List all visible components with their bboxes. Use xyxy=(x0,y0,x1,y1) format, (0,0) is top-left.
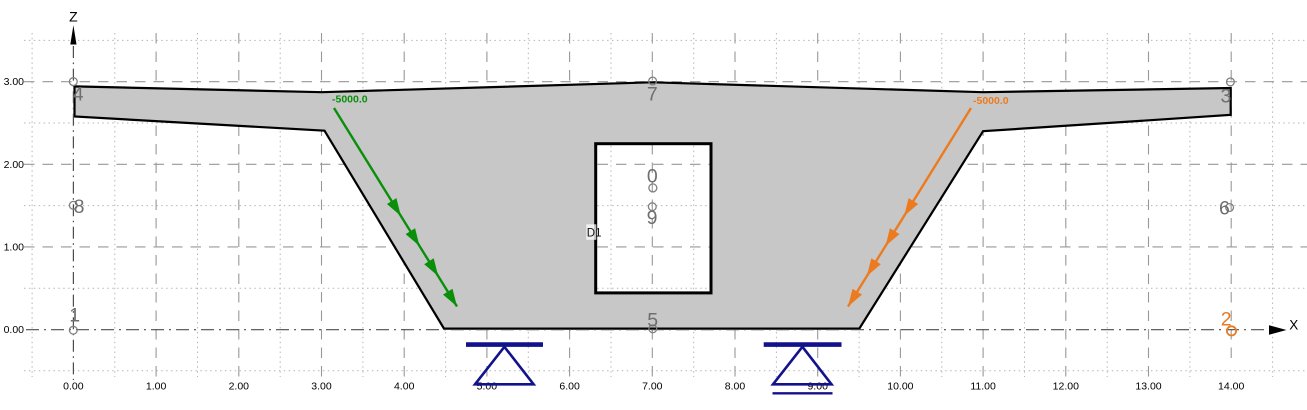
svg-text:D1: D1 xyxy=(587,228,602,240)
svg-text:3.00: 3.00 xyxy=(4,76,25,88)
svg-text:1: 1 xyxy=(69,304,80,326)
svg-text:10.00: 10.00 xyxy=(887,380,913,392)
svg-text:9.00: 9.00 xyxy=(807,380,828,392)
svg-text:2.00: 2.00 xyxy=(4,159,25,171)
svg-text:6: 6 xyxy=(1219,198,1230,220)
svg-text:1.00: 1.00 xyxy=(146,380,167,392)
svg-text:12.00: 12.00 xyxy=(1053,380,1079,392)
svg-text:4: 4 xyxy=(73,84,84,106)
svg-text:8: 8 xyxy=(74,196,85,218)
svg-text:11.00: 11.00 xyxy=(970,380,996,392)
svg-text:3: 3 xyxy=(1220,85,1231,107)
svg-text:7: 7 xyxy=(647,83,658,105)
svg-text:0: 0 xyxy=(647,166,658,188)
svg-text:0.00: 0.00 xyxy=(4,324,25,336)
svg-text:0.00: 0.00 xyxy=(63,380,84,392)
svg-text:6.00: 6.00 xyxy=(559,380,580,392)
svg-text:-5000.0: -5000.0 xyxy=(332,93,368,105)
svg-text:7.00: 7.00 xyxy=(642,380,663,392)
svg-text:X: X xyxy=(1289,318,1298,333)
svg-text:2.00: 2.00 xyxy=(229,380,250,392)
svg-text:13.00: 13.00 xyxy=(1135,380,1161,392)
svg-text:14.00: 14.00 xyxy=(1218,380,1244,392)
svg-text:5.00: 5.00 xyxy=(477,380,498,392)
svg-text:Z: Z xyxy=(69,9,78,25)
svg-text:5: 5 xyxy=(647,309,658,331)
svg-text:3.00: 3.00 xyxy=(311,380,332,392)
svg-text:9: 9 xyxy=(647,207,658,229)
svg-text:4.00: 4.00 xyxy=(394,380,415,392)
svg-text:2: 2 xyxy=(1221,309,1232,331)
svg-text:1.00: 1.00 xyxy=(4,241,25,253)
svg-text:-5000.0: -5000.0 xyxy=(973,95,1009,107)
svg-text:8.00: 8.00 xyxy=(725,380,746,392)
